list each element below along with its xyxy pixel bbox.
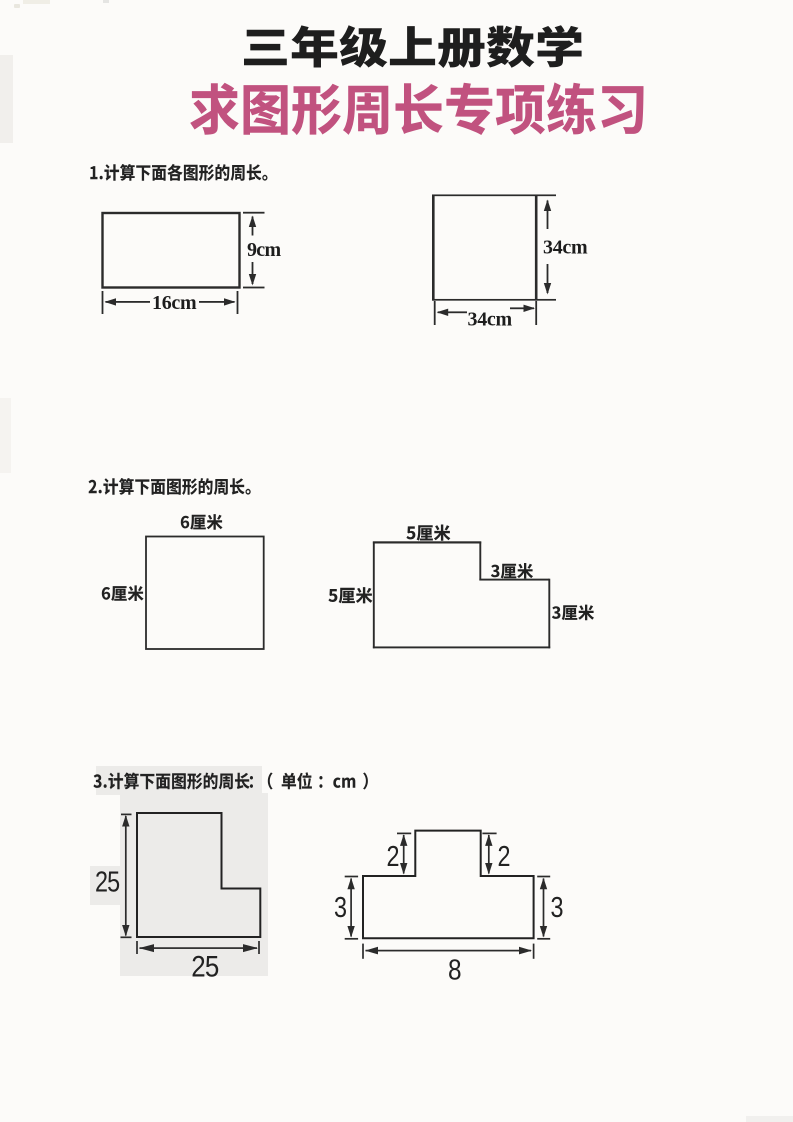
svg-text:3: 3: [551, 891, 564, 924]
svg-text:8: 8: [448, 954, 461, 986]
svg-text:34cm: 34cm: [543, 237, 588, 259]
svg-text:9cm: 9cm: [247, 239, 281, 261]
svg-text:2: 2: [387, 840, 400, 873]
svg-text:25: 25: [95, 865, 120, 898]
svg-text:34cm: 34cm: [468, 308, 513, 330]
svg-text:2: 2: [498, 840, 511, 873]
svg-text:25: 25: [191, 950, 219, 983]
svg-text:3: 3: [334, 891, 347, 924]
svg-text:16cm: 16cm: [152, 292, 197, 314]
